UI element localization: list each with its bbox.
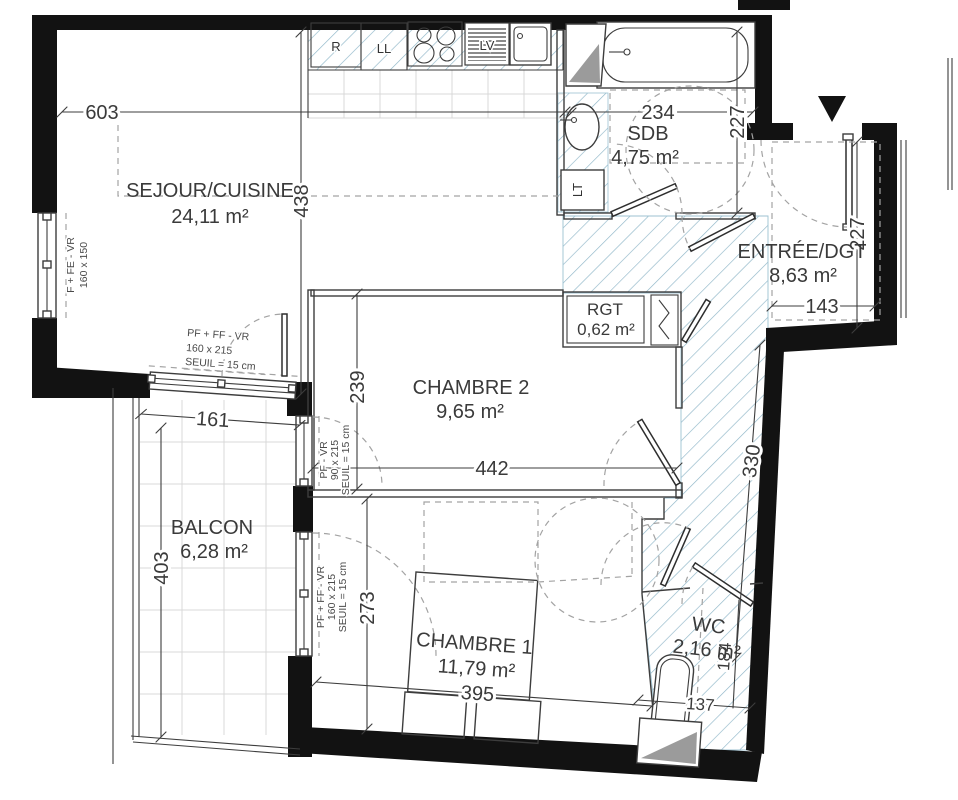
dim-chambre2-width: 442 [475,458,508,480]
rgt-heater-box [651,295,678,345]
dim-degagement-depth: 330 [739,443,765,479]
dim-entree-width: 143 [805,296,838,318]
window-sejour-left [38,213,66,318]
wall-ch1-ch2 [308,490,682,497]
window-chambre2 [296,416,319,486]
sink-box [510,23,551,65]
wall-left-upper [32,15,57,213]
bathtub-outer [597,22,755,88]
room-label-balcon: BALCON [171,517,253,539]
room-area-chambre2: 9,65 m² [436,401,504,423]
wall-ch2-top [311,290,563,296]
room-label-entree: ENTRÉE/DGT [738,240,867,263]
dim-sdb-depth: 227 [727,105,749,138]
balcon-door-label-2: 160 x 215 [186,342,233,357]
sejour-window-label-2: 160 x 150 [78,242,90,288]
wardrobe-dashed [424,502,538,582]
balcony-railing [113,388,300,764]
balcony-door-leaf [282,314,287,376]
room-label-chambre1: CHAMBRE 1 [415,629,533,659]
wall-entree-bottom [766,320,897,353]
dim-balcon-depth: 403 [151,551,173,584]
dim-wc-width: 137 [686,694,716,715]
room-area-chambre1: 11,79 m² [437,655,516,682]
wall-right-upper [755,15,772,125]
dim-sejour-width: 603 [85,102,118,124]
balcon-door-label-1: PF + FF - VR [187,327,250,343]
sdb-door-leaf [611,184,677,217]
floor-plan-page: R LL LV LT [0,0,958,800]
wall-balcony-c [288,656,312,757]
floor-plan-drawing: R LL LV LT [0,0,958,800]
wall-balcony-b [293,486,313,532]
chambre1-turning-circle [535,498,659,622]
washbasin [565,104,599,150]
dim-sdb-width: 234 [641,102,674,124]
wall-door-stub-right [862,123,897,140]
dishwasher-label: LV [480,38,495,53]
room-area-entree: 8,63 m² [769,265,837,287]
chambre2-window-label-3: SEUIL = 15 cm [340,424,352,495]
room-area-balcon: 6,28 m² [180,541,248,563]
chambre1-window-label-3: SEUIL = 15 cm [337,561,349,632]
room-label-wc: WC [691,613,726,638]
landing-lines [901,58,952,318]
room-label-sejour: SEJOUR/CUISINE [126,180,294,202]
dim-chambre1-depth: 273 [357,591,379,624]
wall-top-stub [738,0,790,10]
wall-door-stub-left [747,123,793,140]
wall-bottom-left-bar [32,366,150,398]
chambre2-door-arc [604,421,640,486]
nightstand [402,692,467,738]
balcon-door-label-3: SEUIL = 15 cm [185,356,256,373]
laundry-tub-label: LT [570,183,585,197]
entrance-door-arc [761,140,848,227]
window-balcony-door [147,366,300,400]
room-area-sdb: 4,75 m² [611,147,679,169]
chambre2-door-leaf [638,419,681,485]
washer-label: LL [377,41,391,56]
entrance-arrow-icon [818,96,846,122]
chambre1-furniture [402,498,659,743]
room-area-sejour: 24,11 m² [171,206,249,228]
fridge-label: R [331,39,340,54]
sejour-window-label-1: F + FE - VR [65,237,77,293]
dim-chambre2-depth: 239 [347,370,369,403]
entrance-door-leaf [846,138,852,226]
room-label-rgt: RGT [587,300,623,319]
water-heater-icon [659,300,669,339]
dim-balcon-width: 161 [195,408,230,432]
room-label-chambre2: CHAMBRE 2 [413,377,530,399]
room-area-rgt: 0,62 m² [577,320,635,339]
dim-chambre1-width: 395 [460,682,495,706]
dim-sejour-depth: 438 [291,184,313,217]
room-label-sdb: SDB [627,123,668,145]
